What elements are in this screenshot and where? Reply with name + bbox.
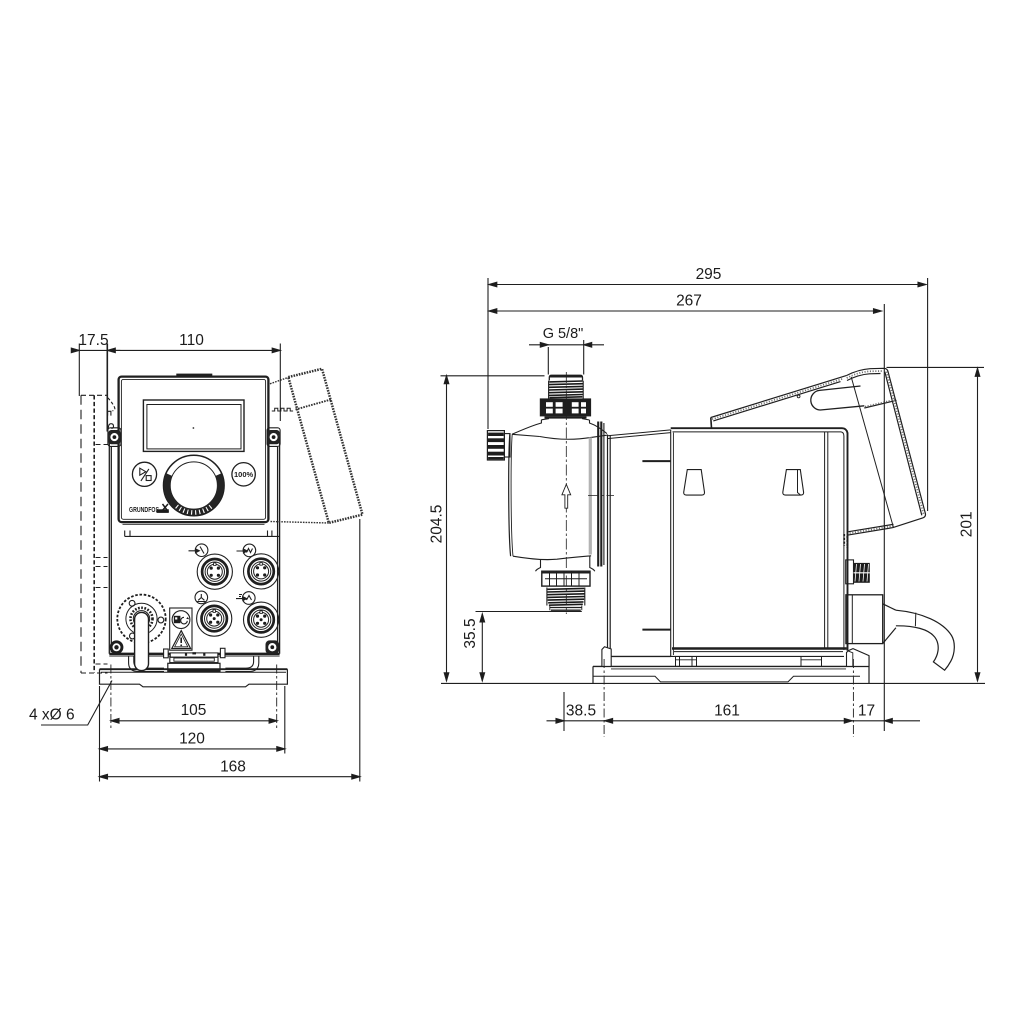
svg-text:204.5: 204.5 — [429, 505, 446, 544]
svg-text:201: 201 — [959, 511, 976, 537]
svg-text:100%: 100% — [234, 470, 254, 479]
svg-text:GRUNDFOS: GRUNDFOS — [129, 507, 159, 514]
svg-text:105: 105 — [181, 702, 207, 719]
svg-text:G 5/8": G 5/8" — [543, 326, 584, 342]
svg-text:38.5: 38.5 — [566, 703, 596, 720]
svg-text:295: 295 — [696, 266, 722, 283]
svg-text:4 xØ 6: 4 xØ 6 — [29, 707, 75, 724]
svg-text:110: 110 — [179, 332, 204, 349]
svg-text:161: 161 — [714, 703, 740, 720]
svg-text:267: 267 — [676, 293, 702, 310]
svg-text:17.5: 17.5 — [78, 332, 108, 349]
svg-text:168: 168 — [220, 758, 246, 775]
svg-text:120: 120 — [179, 731, 205, 748]
svg-text:17: 17 — [858, 703, 875, 720]
svg-text:35.5: 35.5 — [462, 618, 479, 648]
